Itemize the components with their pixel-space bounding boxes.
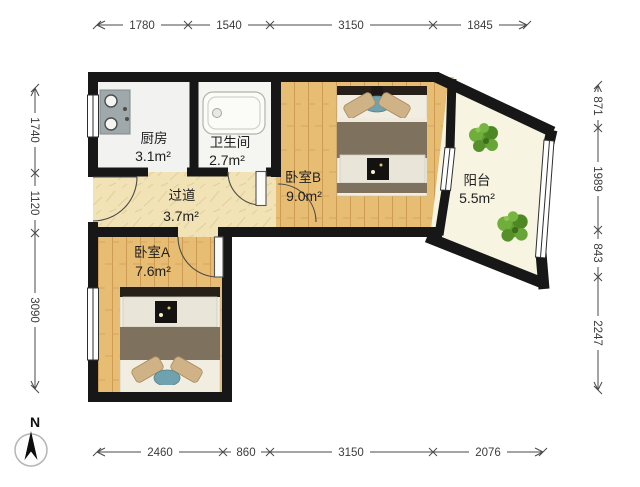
dim-left-2: 1120	[28, 191, 40, 216]
bedroom-b-name: 卧室B	[285, 169, 321, 185]
floor-plan-canvas: 厨房 3.1m² 卫生间 2.7m² 过道 3.7m² 卧室A 7.6m² 卧室…	[0, 0, 640, 487]
north-label: N	[30, 414, 40, 430]
dim-right-4: 2247	[591, 320, 603, 346]
balcony-name: 阳台	[464, 173, 491, 188]
bedroom-b-bed	[337, 86, 427, 196]
dim-top-1: 1780	[129, 20, 155, 32]
bathroom-area: 2.7m²	[209, 152, 245, 168]
balcony-area: 5.5m²	[459, 190, 495, 206]
room-label-kitchen: 厨房 3.1m²	[135, 131, 171, 164]
dim-right-2: 1989	[591, 166, 603, 192]
dim-top-4: 1845	[467, 20, 493, 32]
bedroom-a-name: 卧室A	[134, 244, 170, 260]
bedroom-a-window	[88, 288, 99, 360]
kitchen-name: 厨房	[141, 131, 168, 146]
kitchen-window	[88, 95, 99, 137]
dim-bottom-2: 860	[236, 447, 255, 459]
dim-right-3: 843	[591, 243, 603, 262]
dim-bottom-3: 3150	[338, 447, 364, 459]
room-label-bathroom: 卫生间 2.7m²	[209, 135, 250, 168]
bathtub-icon	[203, 92, 265, 134]
dim-left-1: 1740	[28, 117, 40, 143]
north-compass-icon: N	[15, 414, 47, 466]
dim-bottom-1: 2460	[147, 447, 173, 459]
bedroom-b-area: 9.0m²	[286, 188, 322, 204]
kitchen-area: 3.1m²	[135, 148, 171, 164]
bathroom-name: 卫生间	[210, 135, 251, 150]
dim-top-2: 1540	[216, 20, 242, 32]
hallway-name: 过道	[169, 188, 196, 203]
dim-bottom-4: 2076	[475, 447, 501, 459]
dim-left-3: 3090	[28, 297, 40, 323]
hallway-area: 3.7m²	[163, 208, 199, 224]
kitchen-stove-icon	[100, 90, 130, 134]
dim-right-1: 871	[591, 96, 603, 115]
dim-top-3: 3150	[338, 20, 364, 32]
bedroom-a-bed	[120, 287, 220, 393]
floor-plan-page: 厨房 3.1m² 卫生间 2.7m² 过道 3.7m² 卧室A 7.6m² 卧室…	[0, 0, 640, 487]
bedroom-a-area: 7.6m²	[135, 263, 171, 279]
room-label-balcony: 阳台 5.5m²	[459, 173, 495, 206]
